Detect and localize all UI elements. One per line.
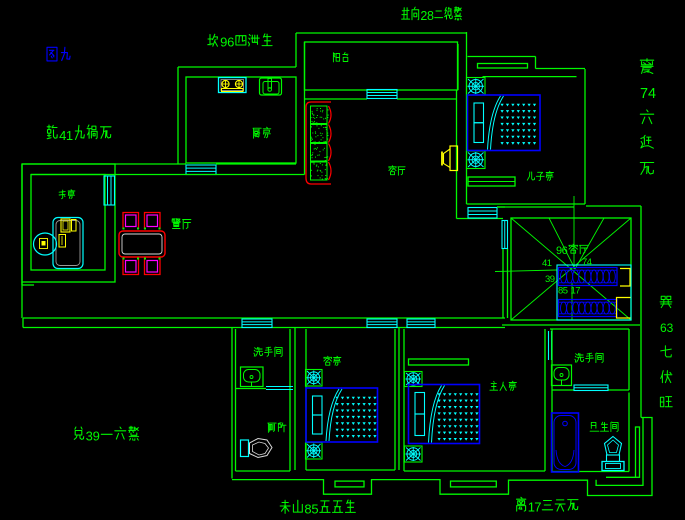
svg-text:41: 41 bbox=[542, 258, 552, 269]
svg-text:63: 63 bbox=[660, 321, 674, 335]
svg-text:17: 17 bbox=[528, 499, 542, 514]
svg-text:39: 39 bbox=[545, 274, 555, 285]
svg-text:85: 85 bbox=[558, 286, 568, 297]
svg-text:39: 39 bbox=[86, 428, 100, 443]
svg-text:85: 85 bbox=[304, 501, 318, 516]
svg-text:96: 96 bbox=[556, 245, 568, 257]
svg-text:17: 17 bbox=[571, 286, 581, 297]
svg-text:96: 96 bbox=[220, 35, 234, 50]
svg-text:74: 74 bbox=[582, 257, 592, 268]
svg-text:41: 41 bbox=[59, 128, 73, 143]
svg-text:28: 28 bbox=[420, 9, 434, 23]
svg-text:74: 74 bbox=[640, 86, 656, 102]
